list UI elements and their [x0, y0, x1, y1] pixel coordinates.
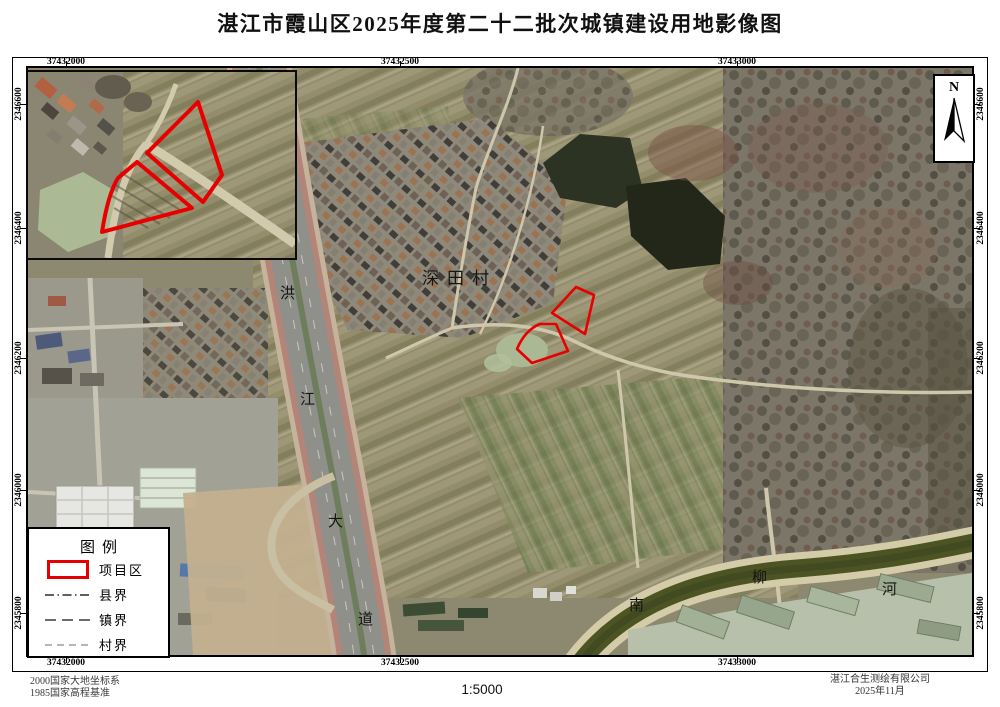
north-arrow-icon	[942, 95, 966, 147]
map-date: 2025年11月	[830, 686, 930, 698]
coord-label-left: 2346200	[14, 341, 24, 374]
coord-label-right: 2346600	[976, 87, 986, 120]
legend: 图例 项目区 县界 镇界 村界	[27, 527, 170, 658]
company-name: 湛江合生测绘有限公司	[830, 674, 930, 686]
river-label-char: 柳	[752, 569, 767, 586]
coord-label-bottom: 37432000	[47, 658, 85, 668]
river-label-char: 河	[882, 581, 897, 598]
coord-label-left: 2346600	[14, 87, 24, 120]
legend-item-town-boundary: 镇界	[29, 607, 168, 632]
scale-label: 1:5000	[461, 682, 502, 697]
town-boundary-symbol	[37, 615, 99, 625]
county-boundary-symbol	[37, 590, 99, 600]
coord-label-bottom: 37432500	[381, 658, 419, 668]
datum-line1: 2000国家大地坐标系	[30, 676, 120, 688]
road-label-char: 道	[358, 611, 373, 628]
road-label-char: 大	[328, 513, 343, 530]
legend-item-county-boundary: 县界	[29, 582, 168, 607]
village-label: 深田村	[422, 269, 497, 288]
coord-label-right: 2346000	[976, 473, 986, 506]
coord-label-left: 2345800	[14, 596, 24, 629]
north-arrow: N	[933, 74, 975, 163]
north-label: N	[949, 81, 959, 95]
datum-note: 2000国家大地坐标系 1985国家高程基准	[30, 676, 120, 700]
project-area-symbol	[37, 560, 99, 579]
map-sheet: 湛江市霞山区2025年度第二十二批次城镇建设用地影像图 37432000 374…	[0, 0, 1000, 707]
coord-label-right: 2345800	[976, 596, 986, 629]
legend-item-village-boundary: 村界	[29, 632, 168, 657]
producer-note: 湛江合生测绘有限公司 2025年11月	[830, 674, 930, 698]
legend-title: 图例	[29, 536, 168, 557]
coord-label-left: 2346000	[14, 473, 24, 506]
legend-item-project-area: 项目区	[29, 557, 168, 582]
road-label-char: 洪	[280, 285, 295, 302]
coord-label-right: 2346400	[976, 211, 986, 244]
village-boundary-symbol	[37, 640, 99, 650]
inset-imagery	[28, 72, 295, 258]
river-label-char: 南	[629, 597, 644, 614]
coord-label-bottom: 37433000	[718, 658, 756, 668]
page-title: 湛江市霞山区2025年度第二十二批次城镇建设用地影像图	[0, 8, 1000, 38]
road-label-char: 江	[300, 391, 315, 408]
inset-map	[26, 70, 297, 260]
coord-label-right: 2346200	[976, 341, 986, 374]
datum-line2: 1985国家高程基准	[30, 688, 120, 700]
coord-label-left: 2346400	[14, 211, 24, 244]
